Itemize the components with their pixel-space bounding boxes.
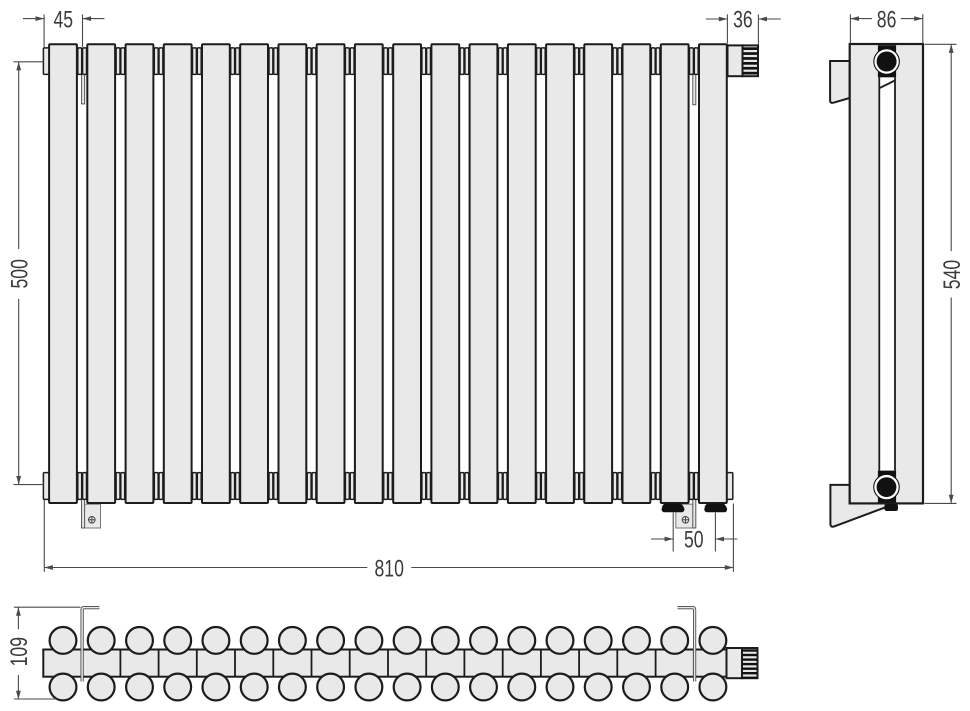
svg-text:500: 500: [6, 259, 34, 289]
svg-text:109: 109: [5, 637, 33, 666]
svg-text:45: 45: [53, 6, 73, 34]
svg-text:540: 540: [938, 260, 966, 290]
svg-text:86: 86: [877, 6, 897, 34]
svg-text:810: 810: [374, 554, 404, 582]
svg-text:36: 36: [733, 6, 753, 34]
svg-text:50: 50: [684, 525, 704, 553]
